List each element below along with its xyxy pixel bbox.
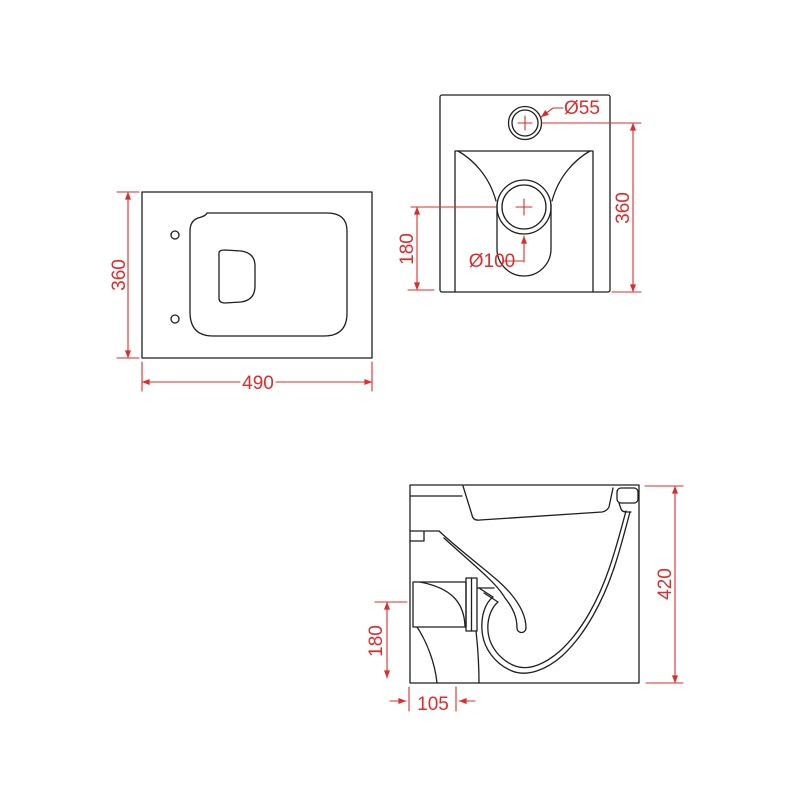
plan-width-label: 490 xyxy=(242,373,274,394)
drain-center-cross xyxy=(516,199,532,215)
plan-fixing-hole-bottom xyxy=(171,315,179,323)
side-dimensions xyxy=(375,486,683,711)
plan-fixing-hole-top xyxy=(171,231,179,239)
side-front-rim-section xyxy=(617,488,638,503)
side-weir-tip xyxy=(517,628,526,633)
side-view xyxy=(410,485,639,683)
inlet-center-cross xyxy=(518,116,532,130)
side-rim-hook xyxy=(619,503,631,512)
side-mount-step xyxy=(410,531,439,541)
plan-depth-label: 360 xyxy=(109,259,130,291)
technical-drawing-canvas: 360 490 Ø55 360 180 Ø100 420 180 105 xyxy=(0,0,800,800)
back-drain-center-label: 180 xyxy=(397,233,418,265)
side-outlet-center-label: 180 xyxy=(366,625,387,657)
dimension-labels: 360 490 Ø55 360 180 Ø100 420 180 105 xyxy=(109,98,676,715)
inlet-diameter-leader xyxy=(541,108,563,117)
side-pedestal-front-line xyxy=(476,631,479,683)
side-trap-inner-wall xyxy=(484,511,626,668)
side-outlet-pipe xyxy=(413,582,466,627)
side-height-label: 420 xyxy=(655,568,676,600)
back-funnel-left xyxy=(458,151,496,201)
side-outlet-offset-label: 105 xyxy=(417,694,449,715)
side-bowl-front-wall-inner xyxy=(444,538,517,628)
drain-diameter-label: Ø100 xyxy=(469,251,515,272)
plan-bowl-opening xyxy=(219,250,255,303)
plan-dimensions xyxy=(117,192,372,391)
side-bowl-rim-section xyxy=(463,486,613,520)
plan-view xyxy=(142,192,372,358)
back-funnel-right xyxy=(552,151,590,201)
side-outer-body xyxy=(410,485,639,683)
back-height-label: 360 xyxy=(613,192,634,224)
inlet-diameter-label: Ø55 xyxy=(564,98,600,119)
side-pedestal-back-line xyxy=(417,627,437,683)
side-outlet-bend xyxy=(420,582,465,626)
product-geometry xyxy=(142,95,639,683)
dimensions xyxy=(117,108,683,711)
plan-seat-outline xyxy=(190,213,347,336)
drawing-page: 360 490 Ø55 360 180 Ø100 420 180 105 xyxy=(0,0,800,800)
